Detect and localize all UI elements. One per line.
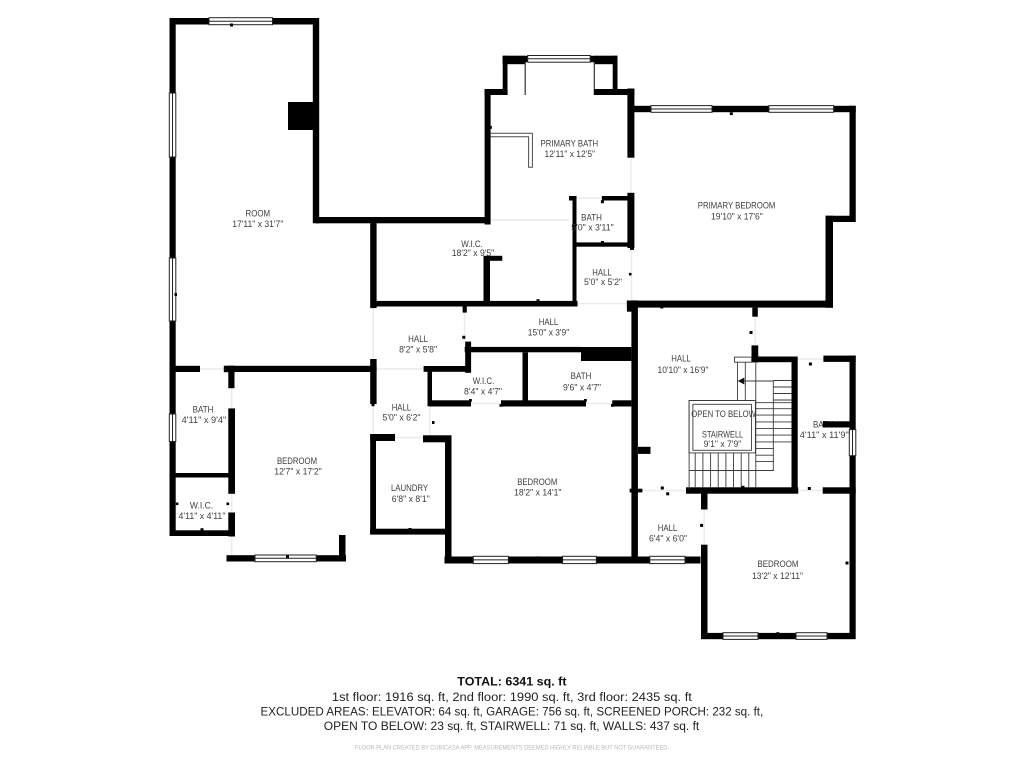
svg-text:4'11" x 9'4": 4'11" x 9'4" <box>182 415 227 425</box>
svg-text:10'10" x 16'9": 10'10" x 16'9" <box>658 365 709 375</box>
svg-text:4'11" x 11'9": 4'11" x 11'9" <box>800 430 849 440</box>
svg-text:12'7" x 17'2": 12'7" x 17'2" <box>274 467 322 477</box>
svg-text:BATH: BATH <box>571 371 592 381</box>
svg-text:9'1" x 7'9": 9'1" x 7'9" <box>704 439 742 449</box>
svg-text:PRIMARY BEDROOM: PRIMARY BEDROOM <box>698 201 776 211</box>
svg-text:5'0" x 3'11": 5'0" x 3'11" <box>571 223 614 233</box>
svg-text:BEDROOM: BEDROOM <box>517 477 557 487</box>
svg-text:BATH: BATH <box>581 213 602 223</box>
svg-text:TOTAL: 6341 sq. ft: TOTAL: 6341 sq. ft <box>457 674 566 688</box>
svg-text:BEDROOM: BEDROOM <box>277 456 317 466</box>
svg-text:19'10" x 17'6": 19'10" x 17'6" <box>711 211 763 221</box>
svg-text:HALL: HALL <box>658 523 677 533</box>
svg-text:HALL: HALL <box>671 353 690 363</box>
svg-text:W.I.C.: W.I.C. <box>190 501 213 511</box>
svg-text:8'4" x 4'7": 8'4" x 4'7" <box>464 387 502 397</box>
svg-text:5'0" x 5'2": 5'0" x 5'2" <box>584 277 622 287</box>
svg-text:EXCLUDED AREAS: ELEVATOR: 64 s: EXCLUDED AREAS: ELEVATOR: 64 sq. ft, GAR… <box>261 707 764 719</box>
svg-text:13'2" x 12'11": 13'2" x 12'11" <box>752 571 803 581</box>
svg-text:STAIRWELL: STAIRWELL <box>702 429 743 439</box>
svg-text:12'11" x 12'5": 12'11" x 12'5" <box>545 149 596 159</box>
svg-text:HALL: HALL <box>408 334 428 344</box>
svg-text:ROOM: ROOM <box>246 209 271 219</box>
svg-text:1st floor: 1916 sq. ft, 2nd fl: 1st floor: 1916 sq. ft, 2nd floor: 1990 … <box>332 692 693 704</box>
svg-text:18'2" x 9'5": 18'2" x 9'5" <box>452 248 495 258</box>
svg-text:PRIMARY BATH: PRIMARY BATH <box>541 138 599 148</box>
svg-text:17'11" x 31'7": 17'11" x 31'7" <box>232 219 283 229</box>
svg-text:15'0" x 3'9": 15'0" x 3'9" <box>528 328 569 338</box>
svg-text:8'2" x 5'8": 8'2" x 5'8" <box>399 344 437 354</box>
svg-text:FLOOR PLAN CREATED BY CUBICASA: FLOOR PLAN CREATED BY CUBICASA APP. MEAS… <box>355 744 669 751</box>
svg-text:LAUNDRY: LAUNDRY <box>391 483 428 493</box>
svg-text:5'0" x 6'2": 5'0" x 6'2" <box>383 413 421 423</box>
svg-text:4'11" x 4'11": 4'11" x 4'11" <box>179 511 226 521</box>
svg-text:BATH: BATH <box>193 405 214 415</box>
svg-text:9'6" x 4'7": 9'6" x 4'7" <box>563 382 601 392</box>
svg-text:HALL: HALL <box>392 402 411 412</box>
svg-text:OPEN TO BELOW: OPEN TO BELOW <box>691 409 756 419</box>
svg-text:BEDROOM: BEDROOM <box>757 559 798 569</box>
svg-text:6'8" x 8'1": 6'8" x 8'1" <box>392 494 430 504</box>
svg-text:W.I.C.: W.I.C. <box>473 376 495 386</box>
svg-text:18'2" x 14'1": 18'2" x 14'1" <box>514 487 562 497</box>
svg-text:6'4" x 6'0": 6'4" x 6'0" <box>649 534 687 544</box>
svg-text:HALL: HALL <box>539 317 558 327</box>
svg-text:OPEN TO BELOW: 23 sq. ft, STAI: OPEN TO BELOW: 23 sq. ft, STAIRWELL: 71 … <box>324 721 700 733</box>
